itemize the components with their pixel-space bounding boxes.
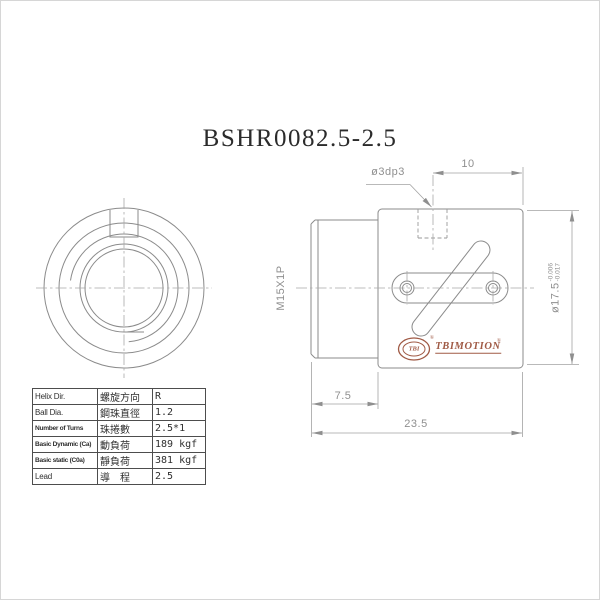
drawing-sheet: BSHR0082.5-2.5 10 ø3dp3 M15X1P ø17.5 -0.… — [0, 0, 600, 600]
spec-en: Number of Turns — [33, 421, 98, 437]
hole-leader-arrow — [410, 185, 432, 208]
table-row: Basic Dynamic (Ca) 動負荷 189 kgf — [33, 437, 206, 453]
spec-zh: 珠捲數 — [98, 421, 153, 437]
spec-en: Helix Dir. — [33, 389, 98, 405]
spec-zh: 螺旋方向 — [98, 389, 153, 405]
od-tolerance-lower: -0.017 — [555, 263, 562, 281]
spec-zh: 動負荷 — [98, 437, 153, 453]
table-row: Lead 導 程 2.5 — [33, 469, 206, 485]
spec-zh: 靜負荷 — [98, 453, 153, 469]
drawing-title: BSHR0082.5-2.5 — [203, 125, 398, 153]
hole-callout-label: ø3dp3 — [371, 166, 405, 178]
table-row: Number of Turns 珠捲數 2.5*1 — [33, 421, 206, 437]
dim-10-label: 10 — [461, 158, 474, 170]
tbi-logo-registered: ® — [430, 335, 434, 341]
spec-value: 2.5 — [153, 469, 206, 485]
brand-registered: ® — [497, 338, 501, 344]
side-view-centerlines — [296, 175, 534, 305]
dim-75-label: 7.5 — [335, 390, 352, 402]
threaded-shank — [311, 220, 378, 358]
spec-en: Lead — [33, 469, 98, 485]
spec-value: 189 kgf — [153, 437, 206, 453]
table-row: Basic static (C0a) 靜負荷 381 kgf — [33, 453, 206, 469]
dimension-lines — [312, 167, 580, 437]
od-tolerance: -0.006 -0.017 — [549, 263, 562, 281]
spec-en: Basic static (C0a) — [33, 453, 98, 469]
oil-hole-hidden — [418, 209, 447, 238]
spec-value: R — [153, 389, 206, 405]
end-view-centerlines — [36, 198, 212, 378]
table-row: Helix Dir. 螺旋方向 R — [33, 389, 206, 405]
spec-value: 2.5*1 — [153, 421, 206, 437]
spec-table: Helix Dir. 螺旋方向 R Ball Dia. 鋼珠直徑 1.2 Num… — [32, 388, 206, 485]
dim-235-label: 23.5 — [404, 418, 427, 430]
spec-value: 1.2 — [153, 405, 206, 421]
drawing-linework — [0, 0, 600, 600]
tbi-logo-text: TBI — [409, 346, 420, 353]
brand-name: TBIMOTION — [435, 341, 501, 354]
spec-zh: 導 程 — [98, 469, 153, 485]
table-row: Ball Dia. 鋼珠直徑 1.2 — [33, 405, 206, 421]
spec-en: Basic Dynamic (Ca) — [33, 437, 98, 453]
ball-return-slot — [408, 237, 493, 339]
od-dimension-label: ø17.5 -0.006 -0.017 — [549, 263, 562, 313]
spec-zh: 鋼珠直徑 — [98, 405, 153, 421]
od-value: ø17.5 — [549, 282, 561, 313]
spec-value: 381 kgf — [153, 453, 206, 469]
spec-en: Ball Dia. — [33, 405, 98, 421]
thread-spec-label: M15X1P — [275, 265, 287, 310]
